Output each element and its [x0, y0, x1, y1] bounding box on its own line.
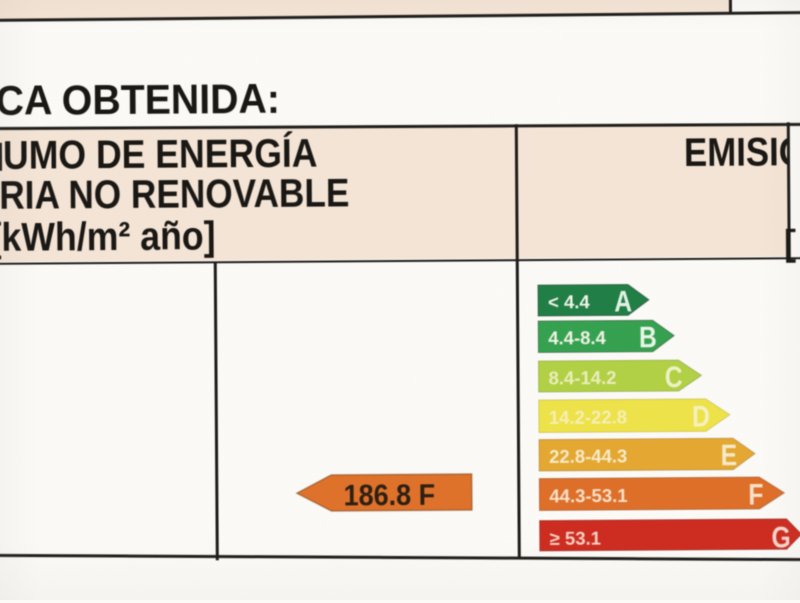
svg-text:F: F: [748, 477, 763, 511]
svg-text:B: B: [639, 320, 657, 354]
svg-text:A: A: [614, 284, 632, 318]
svg-text:E: E: [721, 438, 738, 472]
svg-text:186.8 F: 186.8 F: [344, 478, 436, 512]
svg-text:44.3-53.1: 44.3-53.1: [549, 485, 627, 507]
svg-text:C: C: [665, 360, 683, 394]
svg-text:22.8-44.3: 22.8-44.3: [549, 445, 627, 467]
svg-text:14.2-22.8: 14.2-22.8: [549, 406, 627, 428]
svg-text:< 4.4: < 4.4: [548, 291, 591, 312]
svg-text:G: G: [771, 520, 790, 554]
svg-text:8.4-14.2: 8.4-14.2: [548, 367, 616, 388]
svg-text:D: D: [692, 399, 710, 433]
svg-text:4.4-8.4: 4.4-8.4: [548, 327, 606, 348]
svg-text:≥ 53.1: ≥ 53.1: [550, 528, 601, 549]
